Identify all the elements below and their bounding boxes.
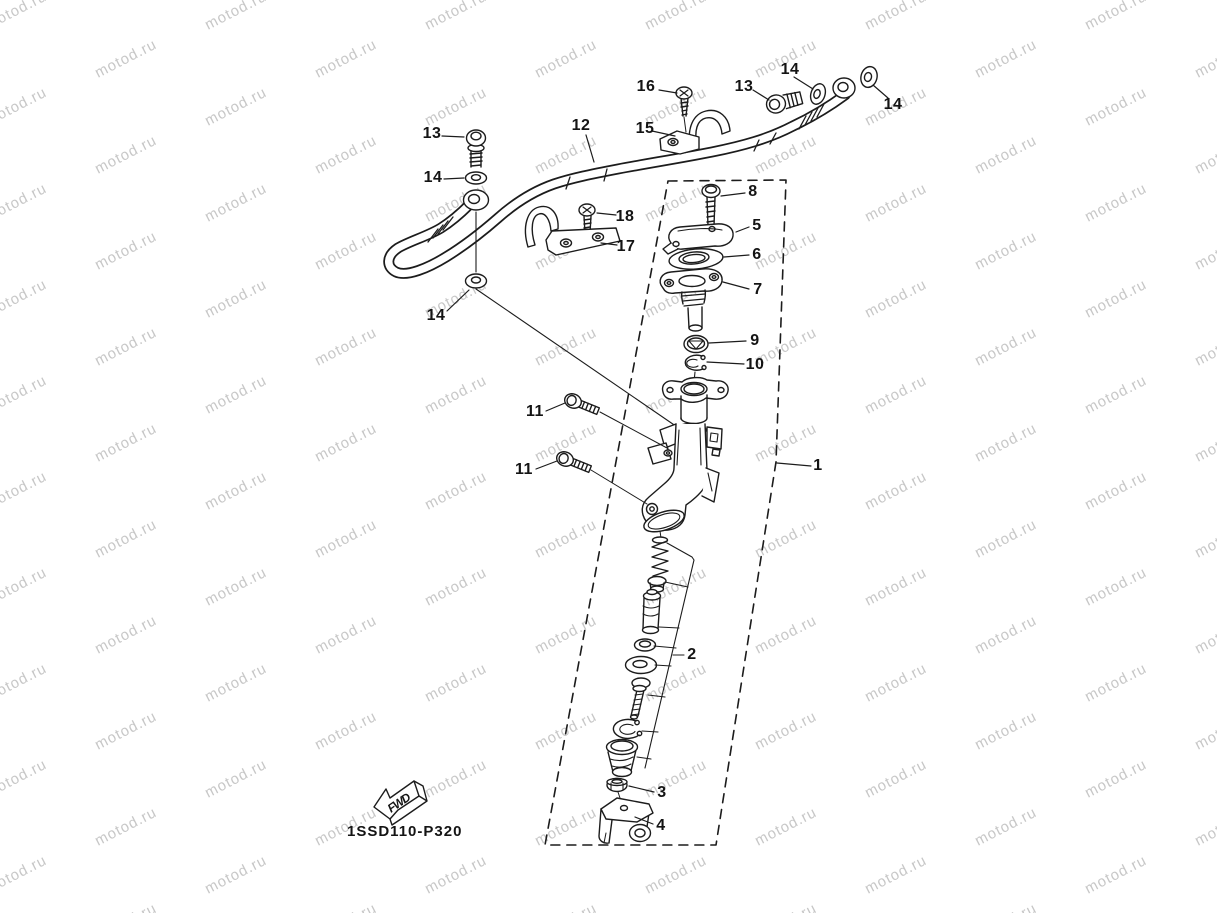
callout-14: 14 [884, 96, 903, 114]
callout-2: 2 [687, 646, 696, 664]
callout-1: 1 [813, 457, 822, 475]
callout-9: 9 [750, 332, 759, 350]
callout-14: 14 [781, 61, 800, 79]
callout-17: 17 [617, 238, 636, 256]
callout-8: 8 [748, 183, 757, 201]
hose-eyelet [833, 78, 855, 98]
callout-13: 13 [423, 125, 442, 143]
callout-5: 5 [752, 217, 761, 235]
callout-7: 7 [753, 281, 762, 299]
part-code: 1SSD110-P320 [347, 823, 462, 840]
nut [607, 779, 627, 792]
callout-11: 11 [515, 461, 533, 479]
cup-seal [635, 639, 656, 651]
callout-10: 10 [746, 356, 765, 374]
callout-12: 12 [572, 117, 591, 135]
parts-diagram-page: motod.ru motod.ru [0, 0, 1217, 913]
washer [466, 274, 487, 288]
watermark-backdrop [0, 0, 1217, 913]
callout-16: 16 [637, 78, 656, 96]
callout-18: 18 [616, 208, 635, 226]
washer [466, 172, 487, 184]
callout-15: 15 [636, 120, 655, 138]
callout-11: 11 [526, 403, 544, 421]
hose-eyelet [464, 190, 489, 210]
callout-13: 13 [735, 78, 754, 96]
callout-4: 4 [656, 817, 665, 835]
callout-3: 3 [657, 784, 666, 802]
union-valve [684, 336, 708, 353]
callout-14: 14 [427, 307, 446, 325]
plate-washer [626, 657, 657, 674]
callout-14: 14 [424, 169, 443, 187]
callout-6: 6 [752, 246, 761, 264]
diagram-canvas: motod.ru motod.ru [0, 0, 1217, 913]
